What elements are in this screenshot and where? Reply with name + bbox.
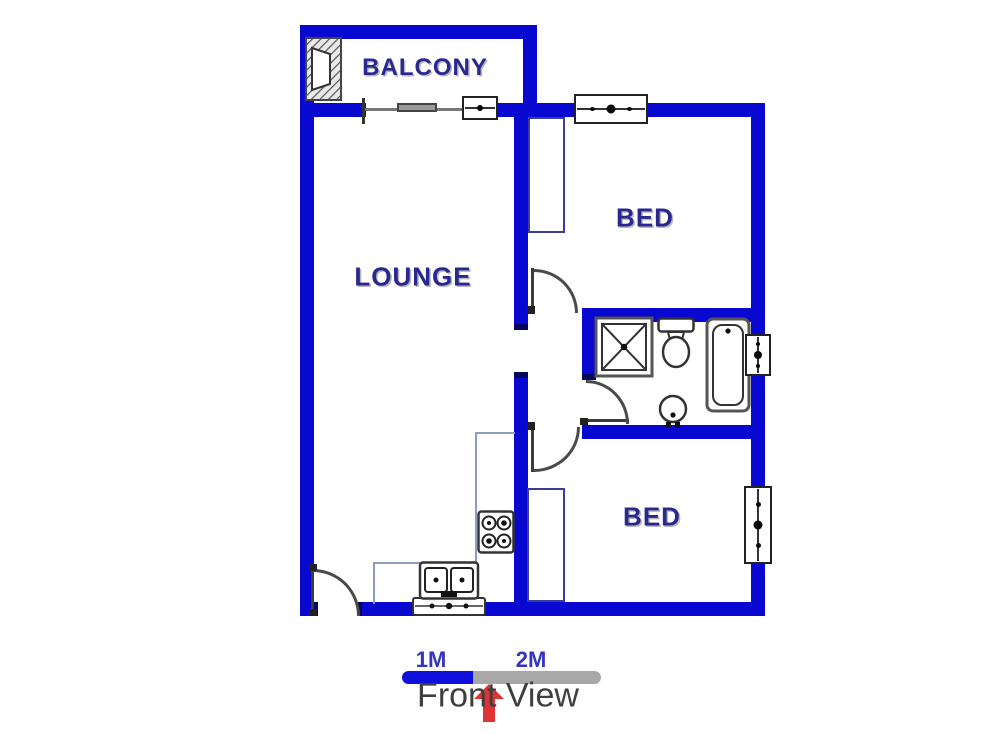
door-hinge [527,422,535,430]
window-tick [756,502,761,507]
stove-icon [477,510,515,554]
room-label-lounge: LOUNGE [354,262,471,293]
sliding-door-panel [397,103,437,112]
shower-icon [594,316,654,378]
bed-top-door-swing-icon [534,269,578,313]
sliding-door-jamb [362,98,365,124]
bathroom-door-swing-icon [586,380,629,424]
window-tick [756,543,761,548]
braai-hatch-icon [305,37,342,101]
wardrobe-outline-bed-top [528,117,565,233]
wardrobe-outline-bed-bottom [527,488,565,602]
room-label-balcony: BALCONY [362,54,488,82]
wall-end-cap [514,324,528,330]
window-icon-bed-bottom [744,486,772,564]
window-dot [477,105,483,111]
window-icon-bed-top [574,94,648,124]
wall-balcony-bottom-left [300,103,366,117]
window-dot [754,351,762,359]
bed-bottom-door-swing-icon [534,427,580,472]
entrance-door-swing-icon [313,569,360,616]
wall-balcony-bottom-right [495,103,537,117]
floorplan-canvas: BALCONY LOUNGE BED BED 1M 2M Front View [0,0,1000,735]
front-view-label: Front View [417,677,579,716]
door-hinge [580,418,588,425]
window-icon-balcony [462,96,498,120]
wall-divider-lower [514,372,528,602]
kitchen-counter-outline [475,432,515,434]
window-tick [590,107,595,111]
window-icon-bathroom [745,334,771,376]
window-dot [754,521,763,530]
scale-label-2m: 2M [516,647,547,673]
window-dot [607,105,616,114]
kitchen-counter-outline [373,562,375,604]
double-sink-icon [412,561,486,617]
room-label-bed-top: BED [616,203,674,234]
window-tick [627,107,632,111]
door-hinge [309,609,317,616]
room-label-bed-bottom: BED [623,502,681,533]
scale-label-1m: 1M [416,647,447,673]
window-tick [756,364,760,368]
wall-divider-upper [514,117,528,330]
window-tick [756,342,760,346]
wall-bed-top [537,103,765,117]
wall-end-cap [514,372,528,378]
toilet-icon [657,317,695,369]
door-hinge [309,564,317,571]
door-hinge [527,306,535,314]
basin-icon [655,394,691,430]
